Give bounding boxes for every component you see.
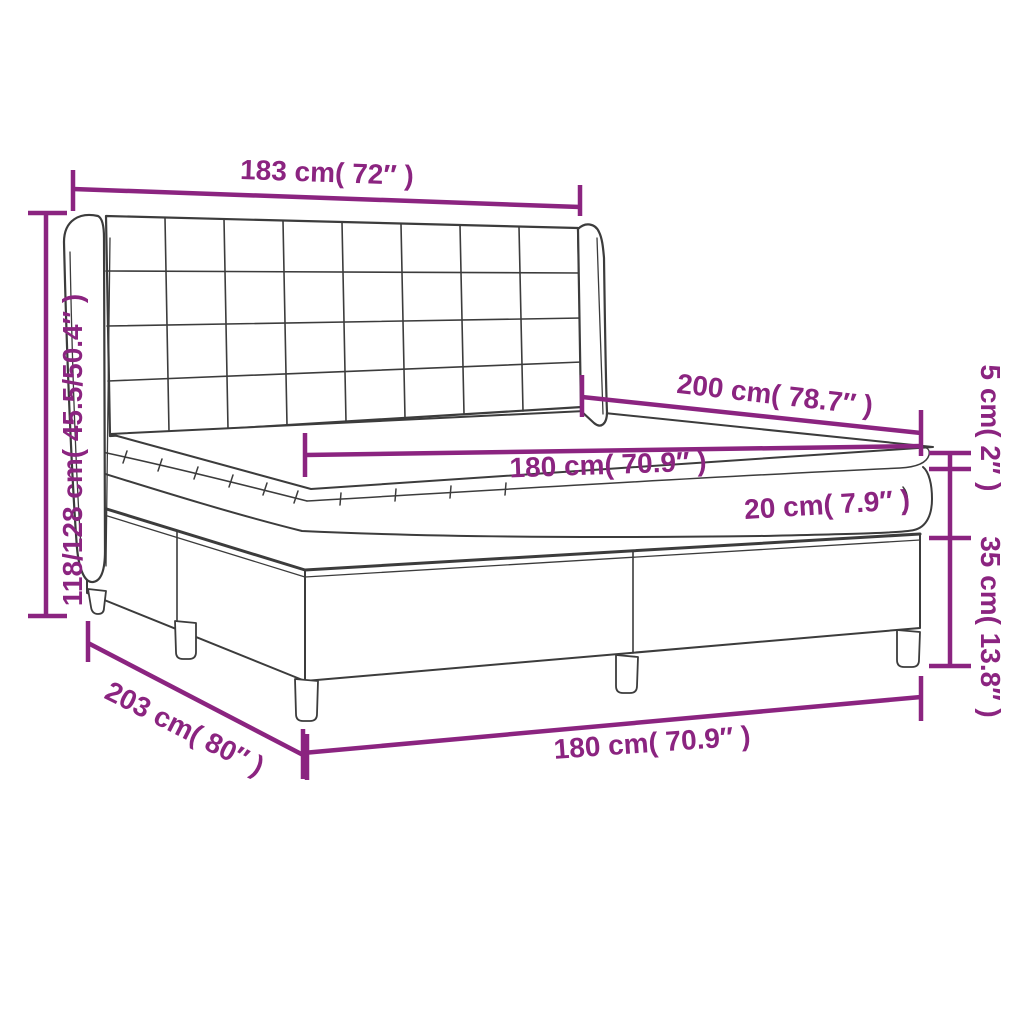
- headboard-grid: [106, 216, 582, 436]
- dim-mattress-height-label: 20 cm( 7.9″ ): [743, 484, 911, 525]
- dim-headboard-width-label: 183 cm( 72″ ): [240, 154, 415, 191]
- bed-diagram-canvas: 183 cm( 72″ ) 118/128 cm( 45.5/50.4″ ) 2…: [0, 0, 1024, 1024]
- bed-dimension-diagram: 183 cm( 72″ ) 118/128 cm( 45.5/50.4″ ) 2…: [0, 0, 1024, 1024]
- dim-topper-height-label: 5 cm( 2″ ): [975, 364, 1006, 491]
- dim-base-height-label: 35 cm( 13.8″ ): [975, 536, 1006, 718]
- dim-right-stack-line: [929, 453, 971, 666]
- box-spring-base: [87, 503, 920, 681]
- dim-frame-width-line: [303, 676, 921, 779]
- dim-overall-height-label: 118/128 cm( 45.5/50.4″ ): [57, 294, 88, 606]
- dim-mattress-length-label: 200 cm( 78.7″ ): [675, 368, 874, 421]
- dim-mattress-width-label: 180 cm( 70.9″ ): [509, 446, 707, 484]
